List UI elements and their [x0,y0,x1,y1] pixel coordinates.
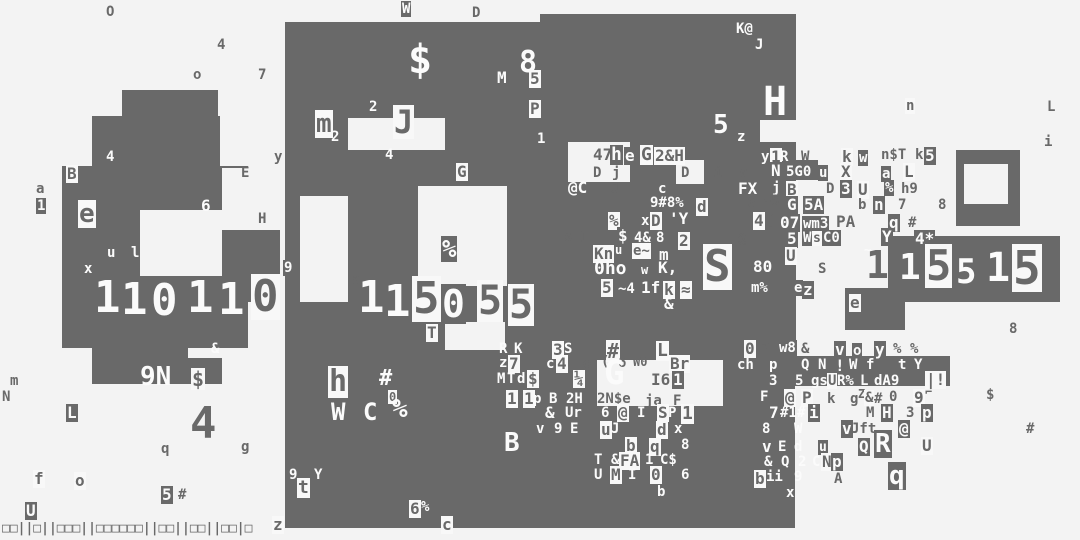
glyph: 4 [385,148,393,162]
glyph: 9 [554,422,562,436]
glyph: O [106,5,114,19]
glyph: f [33,470,45,488]
glyph: 7 [258,68,266,82]
glyph: x [84,262,92,276]
glyph: J [611,182,619,196]
glyph: 5 [1012,244,1042,292]
glyph: i [808,404,820,422]
glyph: C$ [660,453,677,467]
glyph: % [884,180,894,196]
glyph: 0 [744,340,756,358]
glyph: s [564,230,572,244]
glyph: N [818,358,826,372]
glyph: M [610,466,622,484]
glyph: $ [527,370,539,388]
glyph: p [831,453,843,471]
glyph: E [778,440,786,454]
glyph: m% [750,280,769,296]
glyph: q [161,442,169,456]
gray-block [122,90,218,118]
glyph: u [107,246,115,260]
glyph: e [78,200,96,228]
glyph: 5 [477,280,503,322]
glyph: m [10,374,18,388]
glitch-canvas: OWDK@4J$8o7M5HnLm22JP51zi4y4y1RWkwn$Tk5B… [0,0,1080,540]
glyph: u [818,165,828,181]
glyph: # [178,488,186,502]
glyph: f [866,358,874,372]
glyph: i [1044,135,1052,149]
glyph: d [517,372,525,386]
glyph: I [637,406,645,420]
glyph: W [401,1,411,17]
glyph: L [903,163,915,181]
glyph: a [36,182,44,196]
glyph: 8 [762,422,770,436]
glyph: & [864,390,874,406]
glyph: N [770,162,782,180]
glyph: h9 [901,182,918,196]
glyph: 2 [678,232,690,250]
glyph: % [441,236,457,262]
glyph: 7 [898,198,906,212]
glyph: 6 [747,196,755,210]
glyph: 1 [506,390,518,408]
glyph: 5G0 [785,164,812,180]
glyph: v [536,422,544,436]
glyph: y [874,341,886,359]
glyph: H [763,82,787,122]
glyph: @ [738,232,746,246]
glyph: ⌐ [925,386,932,398]
glyph: 2 [798,455,806,469]
glyph: A [834,472,842,486]
glyph: R [499,342,507,356]
glyph: L [656,341,669,361]
glyph: b [754,470,766,488]
glyph: # [379,368,392,390]
glyph: 5 [601,279,613,297]
glyph: h [610,145,623,165]
glyph: p [921,404,933,422]
glyph: dA9 [874,374,899,388]
glyph: C [363,400,377,424]
glyph: J [393,105,414,139]
glyph: 5 [529,70,541,88]
glyph: & [544,404,556,422]
glyph: c [658,182,666,196]
glyph: w8 [778,340,797,356]
glyph: S [703,244,732,290]
glyph: W [794,422,802,436]
glyph: % [893,342,901,356]
glyph: C [812,455,820,469]
glyph: e [849,294,861,312]
glyph: P [529,100,541,118]
glyph: U [594,468,602,482]
glyph: n [905,98,915,114]
glyph: 5 [412,276,441,322]
glyph: % [392,396,408,422]
glyph: K@ [736,22,753,36]
glyph: U [25,502,37,520]
glyph: # [1026,422,1034,436]
background-hole [140,210,222,276]
glyph: x [674,422,682,436]
glyph: ~4 [618,282,635,296]
glyph: gs [811,374,828,388]
glyph: 2H [566,392,583,406]
glyph: q [888,462,906,490]
glyph: 9 [283,260,293,276]
glyph: 1 [358,276,385,320]
glyph: 9#8% [650,196,684,210]
glyph: R% [837,374,854,388]
glyph: 4 [106,150,114,164]
glyph: @C [568,180,587,196]
glyph: E [241,166,249,180]
glyph: 8 [1009,322,1017,336]
glyph: H [881,404,893,422]
glyph: 1 [899,250,921,286]
glyph: M [497,70,507,86]
background-hole [418,186,507,286]
glyph: @ [898,420,910,438]
glyph: T [594,453,602,467]
glyph: 0 [150,278,179,324]
glyph: x [641,214,649,228]
glyph: Ur [565,406,582,420]
glyph: o [583,357,591,371]
glyph: o [193,68,201,82]
glyph: y [761,150,769,164]
glyph: 0 [650,466,662,484]
glyph: b [858,198,866,212]
glyph: b [657,485,665,499]
background-hole [964,164,1008,204]
glyph: E [570,422,578,436]
glyph: w [641,264,648,276]
glyph: $ [408,40,432,80]
glyph: 2 [331,130,339,144]
glyph: 3 [840,180,852,198]
glyph: 3 [906,406,914,420]
glyph: 9 [794,470,802,484]
glyph: n [873,196,885,214]
glyph: □□||□||□□□||□□□□□□||□□||□□||□□|□ [2,522,252,535]
glyph: PA [836,214,855,230]
glyph: j [612,166,620,180]
glyph: Q [781,455,789,469]
glyph: W [331,400,345,424]
glyph: $ [986,388,994,402]
glyph: Y [914,358,922,372]
glyph: C0 [822,230,841,246]
glyph: e~ [632,243,651,259]
glyph: 1 [187,276,214,320]
glyph: 5 [955,254,977,290]
glyph: 1 [384,280,411,324]
glyph: x [786,486,794,500]
glyph: N [2,390,10,404]
glyph: 1 [986,248,1010,288]
glyph: % [910,342,918,356]
glyph: H [258,212,266,226]
glyph: F [760,390,768,404]
glyph: R [874,430,892,458]
glyph: z [272,516,284,534]
glyph: B [66,165,78,183]
glyph: J [611,422,619,436]
glyph: #1# [780,406,805,420]
glyph: 0 [889,390,897,404]
glyph: 1 [672,371,684,389]
glyph: M [866,406,874,420]
glyph: & [764,455,772,469]
glyph: 7 [761,342,769,356]
glyph: & [801,342,809,356]
glyph: 6 [409,500,421,518]
glyph: 6 [201,198,211,214]
glyph: 5 [924,147,936,165]
glyph: t [297,478,310,498]
gray-block [735,410,757,422]
glyph: z [499,356,507,370]
glyph: I [628,468,636,482]
glyph: d [696,198,708,216]
glyph: D [472,6,480,20]
glyph: 5 [713,112,729,138]
glyph: g [241,440,249,454]
glyph: z [737,130,745,144]
gray-block [568,120,760,142]
glyph: & [664,296,674,312]
glyph: w [858,150,868,166]
glyph: D [681,166,689,180]
glyph: 8 [938,198,946,212]
glyph: 6 [601,406,609,420]
glyph: W [801,150,809,164]
glyph: D [593,166,601,180]
glyph: 'Y [668,210,689,228]
glyph: i [714,166,722,180]
glyph: 1 [537,132,545,146]
glyph: n$T [881,148,906,162]
glyph: B [504,430,520,456]
glyph: 1 [681,404,694,424]
glyph: 1 [121,278,148,322]
glyph: U [785,247,797,265]
glyph: 4 [190,402,217,446]
glyph: 8 [656,231,664,245]
background-hole [300,196,348,302]
glyph: I6 [651,372,670,388]
glyph: K, [658,260,677,276]
glyph: 1 [218,278,245,322]
glyph: W0 [633,356,647,368]
glyph: p [769,358,777,372]
glyph: L [860,374,868,388]
glyph: P [668,406,676,420]
glyph: Q [858,438,870,456]
glyph: k [915,148,923,162]
glyph: ¼ [573,370,585,388]
glyph: u [600,421,612,439]
glyph: 4 [556,355,568,373]
glyph: 2 [369,100,377,114]
glyph: G [786,196,798,214]
glyph: 6 [681,468,689,482]
glyph: 4 [217,38,225,52]
glyph: & [211,342,219,356]
glyph: U [921,437,933,455]
glyph: y [274,150,282,164]
glyph: 7 [768,404,780,422]
glyph: 0ho [594,260,627,278]
glyph: S [818,262,826,276]
glyph: 5A [803,196,824,214]
glyph: D [826,182,834,196]
glyph: G [456,163,468,181]
glyph: 0 [441,284,466,324]
glyph: J [755,38,763,52]
gray-block [741,424,757,436]
glyph: m [315,110,333,138]
glyph: c [441,516,453,534]
gray-block [540,14,796,120]
glyph: o [74,472,86,490]
glyph: G [640,145,653,165]
glyph: h [328,366,348,398]
glyph: 0 [251,274,280,320]
glyph: 2&H [654,147,685,165]
glyph: 4 [753,212,765,230]
glyph: Y [314,468,322,482]
background-hole [445,322,505,350]
glyph: 5 [925,244,952,288]
glyph: 8 [681,438,689,452]
glyph: 1f [641,280,660,296]
glyph: T [507,372,515,386]
glyph: U [827,373,837,389]
glyph: 1 [866,246,889,284]
glyph: s [812,231,822,246]
glyph: 1 [36,198,46,214]
glyph: L [1047,100,1055,114]
glyph: ch [737,358,754,372]
glyph: d [794,440,802,454]
glyph: 3 [769,374,777,388]
glyph: c [546,357,554,371]
glyph: ~5 [763,194,780,208]
glyph: @ [617,404,629,422]
glyph: M [497,372,505,386]
glyph: W [849,358,857,372]
glyph: 80 [752,258,773,276]
gray-block [733,438,743,446]
glyph: # [908,216,916,230]
glyph: ≈ [680,281,692,299]
glyph: D [650,212,662,230]
glyph: Q [801,358,809,372]
glyph: u [615,244,622,256]
glyph: k [827,392,835,406]
glyph: ii [766,470,783,484]
glyph: l [131,246,139,260]
glyph: G [604,356,624,390]
glyph: $ [191,368,205,390]
glyph: e [624,147,636,165]
glyph: 5 [508,284,534,326]
glyph: L [66,404,78,422]
glyph: T [426,324,438,342]
glyph: t [898,358,906,372]
glyph: % [421,500,429,514]
glyph: I [580,229,590,245]
glyph: 5 [161,486,173,504]
glyph: p [533,392,541,406]
glyph: z [802,281,814,299]
glyph: W [802,230,812,246]
glyph: v [739,166,747,180]
glyph: Jft [851,422,876,436]
glyph: [ [766,214,774,228]
glyph: 1 [94,276,121,320]
glyph: 5 [795,374,803,388]
glyph: 9N [140,364,171,390]
